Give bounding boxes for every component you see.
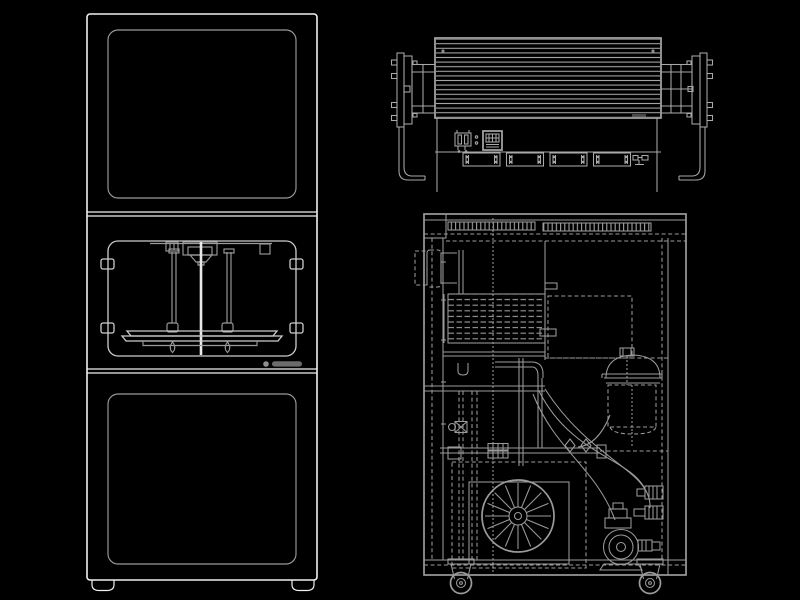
printer-cabinet-front-view bbox=[87, 14, 317, 591]
control-display bbox=[483, 131, 502, 150]
leveling-foot bbox=[92, 580, 114, 591]
hidden-compartment bbox=[548, 296, 632, 358]
pipe-run bbox=[495, 362, 533, 367]
chiller-cabinet-section-view bbox=[415, 214, 686, 594]
finned-drum bbox=[435, 38, 661, 118]
serial-label bbox=[632, 114, 646, 117]
top-vent-strips bbox=[448, 222, 651, 231]
roller-unit-top-view bbox=[392, 38, 713, 192]
rod-clamp-tip bbox=[225, 342, 230, 353]
shaft-left bbox=[412, 61, 435, 117]
support-leg-right bbox=[679, 127, 705, 180]
shelf-rail bbox=[424, 386, 545, 391]
quick-connect-fittings bbox=[634, 486, 663, 519]
rod-clamp-tip bbox=[170, 342, 175, 353]
printer-mechanism bbox=[122, 242, 282, 355]
pipe-clamp bbox=[458, 363, 468, 375]
indicator-led bbox=[475, 136, 477, 138]
top-door-panel bbox=[108, 30, 296, 198]
technical-drawing-canvas bbox=[0, 0, 800, 600]
caster-wheel bbox=[448, 559, 474, 594]
pipe-union-fitting bbox=[633, 156, 648, 165]
support-leg-left bbox=[399, 127, 425, 180]
leveling-foot bbox=[292, 580, 314, 591]
coil-fitting bbox=[545, 283, 557, 289]
z-rod-left bbox=[172, 252, 176, 323]
terminal-strips bbox=[463, 153, 631, 166]
shaft-right bbox=[661, 61, 693, 117]
power-connector bbox=[455, 130, 471, 152]
flange-left bbox=[392, 53, 413, 127]
heat-exchanger-coil bbox=[444, 250, 557, 343]
indicator-led bbox=[475, 142, 477, 144]
fan-blades bbox=[485, 483, 551, 549]
bottom-door-panel bbox=[108, 394, 296, 564]
brand-logo-icon bbox=[263, 361, 269, 367]
valve-diamond bbox=[565, 439, 575, 452]
flange-right bbox=[692, 53, 713, 127]
caster-wheel bbox=[637, 559, 663, 594]
brand-logo-wordmark bbox=[272, 361, 302, 366]
side-bracket bbox=[415, 250, 457, 287]
z-rod-right bbox=[227, 252, 231, 323]
drawing-sheet bbox=[0, 0, 800, 600]
filter-tank bbox=[602, 348, 662, 448]
brand-logo bbox=[263, 361, 302, 367]
pipe-elbow bbox=[533, 362, 543, 378]
